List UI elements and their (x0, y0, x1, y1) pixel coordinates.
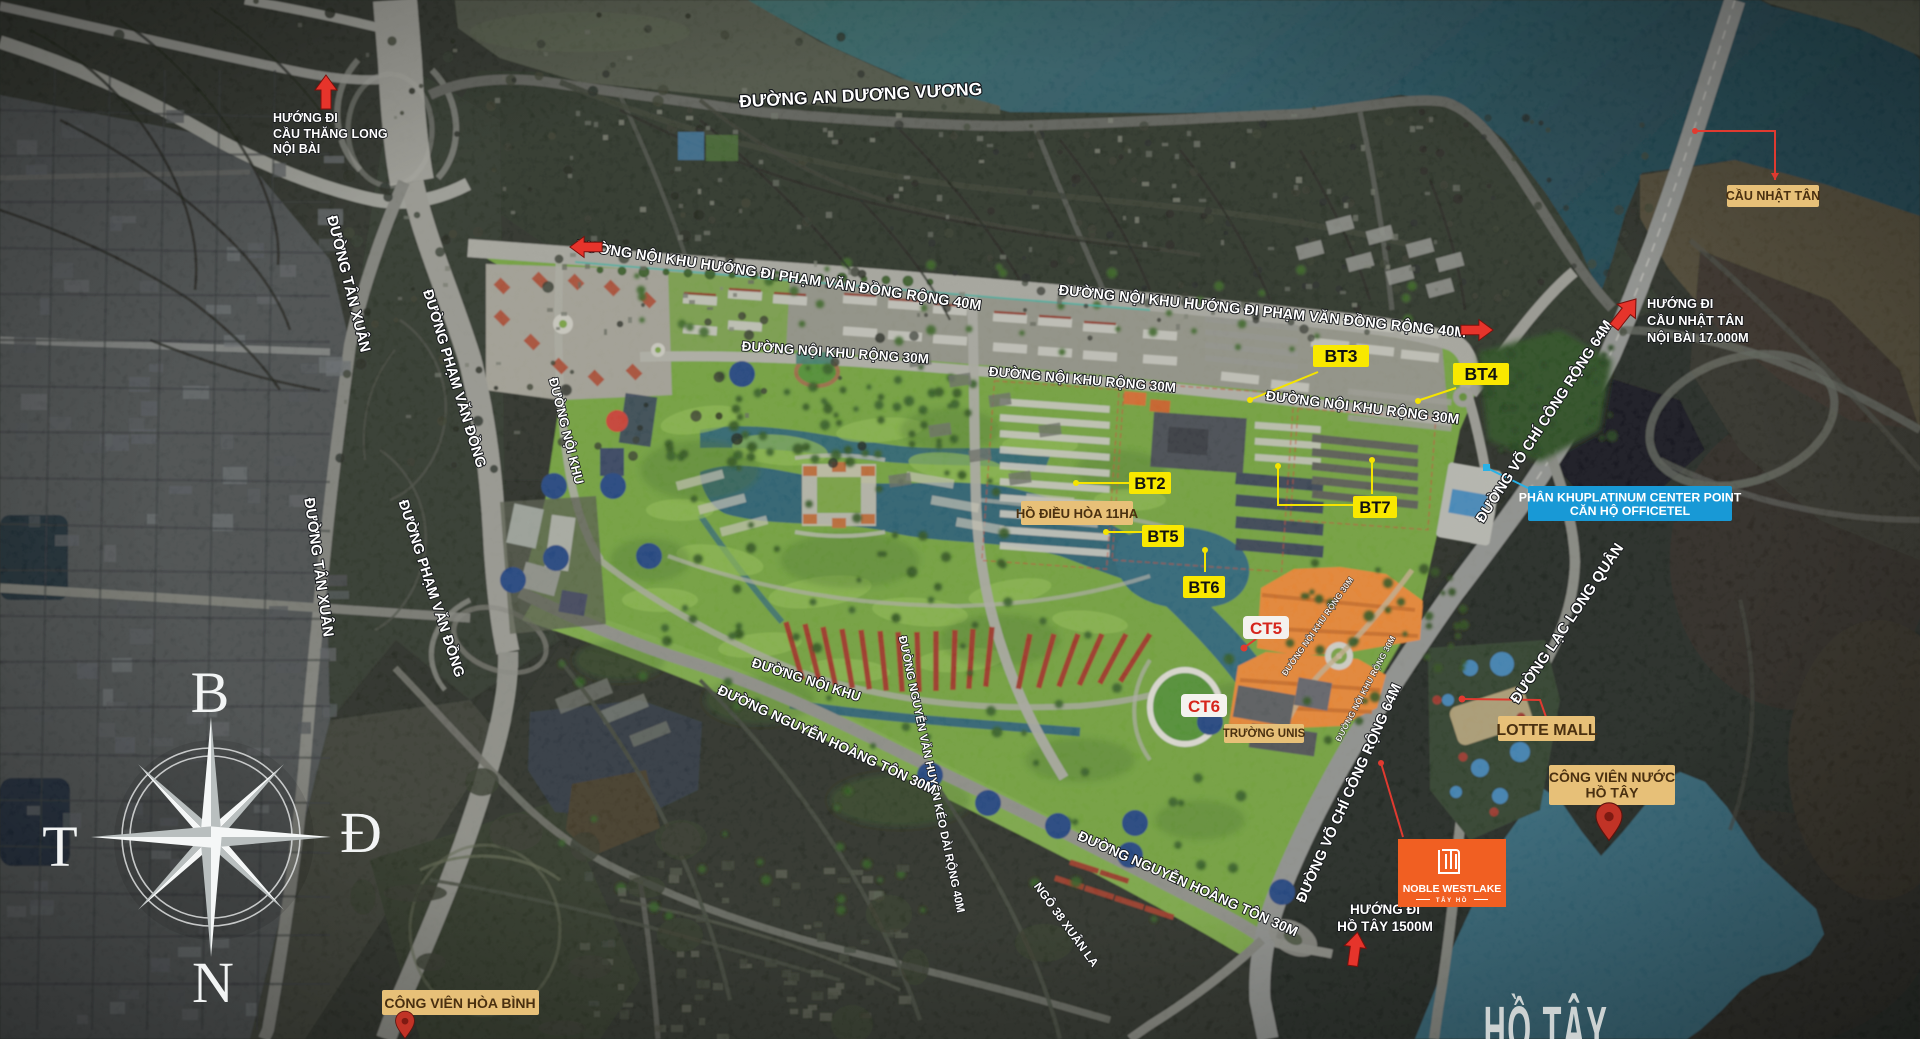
svg-text:TÂY HỒ: TÂY HỒ (1436, 897, 1468, 904)
svg-text:HƯỚNG ĐI: HƯỚNG ĐI (1647, 296, 1713, 311)
svg-text:Đ: Đ (340, 800, 382, 865)
svg-text:LOTTE MALL: LOTTE MALL (1496, 722, 1598, 739)
svg-text:CÔNG VIÊN HÒA BÌNH: CÔNG VIÊN HÒA BÌNH (384, 994, 535, 1011)
svg-text:CĂN HỘ OFFICETEL: CĂN HỘ OFFICETEL (1570, 503, 1691, 518)
svg-text:PHÂN KHUPLATINUM CENTER POINT: PHÂN KHUPLATINUM CENTER POINT (1519, 489, 1742, 504)
svg-text:CẦU NHẬT TÂN: CẦU NHẬT TÂN (1726, 188, 1820, 203)
svg-text:CT5: CT5 (1250, 619, 1282, 638)
svg-text:CẦU THĂNG LONG: CẦU THĂNG LONG (273, 126, 388, 141)
svg-text:CẦU NHẬT TÂN: CẦU NHẬT TÂN (1647, 313, 1744, 328)
svg-text:B: B (191, 660, 230, 725)
svg-text:BT3: BT3 (1324, 346, 1357, 366)
svg-text:HỒ TÂY: HỒ TÂY (1484, 994, 1609, 1039)
svg-text:HƯỚNG ĐI: HƯỚNG ĐI (273, 110, 338, 125)
svg-text:NỘI BÀI: NỘI BÀI (273, 141, 320, 156)
svg-text:BT2: BT2 (1134, 475, 1165, 493)
svg-text:BT7: BT7 (1359, 499, 1390, 517)
svg-text:BT4: BT4 (1464, 364, 1497, 384)
svg-text:HỒ ĐIỀU HÒA 11HA: HỒ ĐIỀU HÒA 11HA (1016, 506, 1139, 521)
svg-text:TRƯỜNG UNIS: TRƯỜNG UNIS (1223, 727, 1306, 740)
svg-text:N: N (192, 950, 234, 1015)
svg-text:HỒ TÂY 1500M: HỒ TÂY 1500M (1337, 919, 1433, 934)
svg-text:CT6: CT6 (1188, 697, 1220, 716)
svg-text:T: T (42, 814, 77, 879)
svg-text:HỒ TÂY: HỒ TÂY (1586, 784, 1640, 801)
svg-text:NỘI BÀI 17.000M: NỘI BÀI 17.000M (1647, 330, 1749, 345)
svg-text:NOBLE WESTLAKE: NOBLE WESTLAKE (1403, 883, 1502, 895)
svg-text:BT5: BT5 (1147, 528, 1178, 546)
svg-text:BT6: BT6 (1188, 579, 1219, 597)
svg-text:CÔNG VIÊN NƯỚC: CÔNG VIÊN NƯỚC (1549, 768, 1675, 785)
